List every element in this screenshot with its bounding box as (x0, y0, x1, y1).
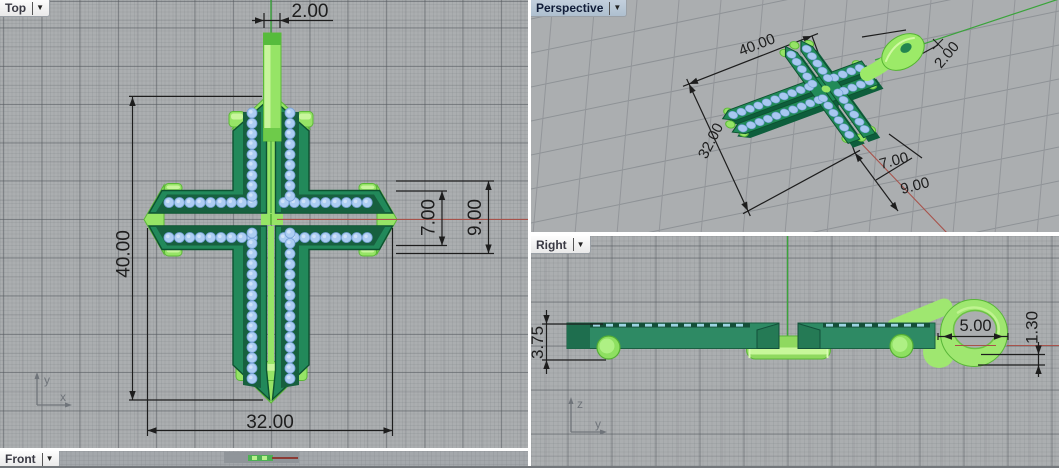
svg-text:5.00: 5.00 (959, 317, 991, 335)
svg-text:9.00: 9.00 (465, 199, 486, 236)
svg-text:40.00: 40.00 (114, 230, 135, 278)
svg-text:2.00: 2.00 (931, 38, 963, 71)
svg-text:32.00: 32.00 (246, 412, 294, 433)
svg-text:y: y (595, 417, 601, 431)
svg-text:7.00: 7.00 (419, 199, 440, 236)
svg-text:1.30: 1.30 (1023, 311, 1042, 344)
svg-text:y: y (44, 373, 50, 387)
svg-text:3.75: 3.75 (531, 326, 547, 359)
svg-text:7.00: 7.00 (878, 149, 911, 173)
svg-text:2.00: 2.00 (292, 1, 329, 22)
svg-text:z: z (577, 397, 583, 411)
svg-text:40.00: 40.00 (736, 30, 777, 59)
svg-text:x: x (60, 390, 66, 404)
svg-text:9.00: 9.00 (899, 174, 932, 198)
